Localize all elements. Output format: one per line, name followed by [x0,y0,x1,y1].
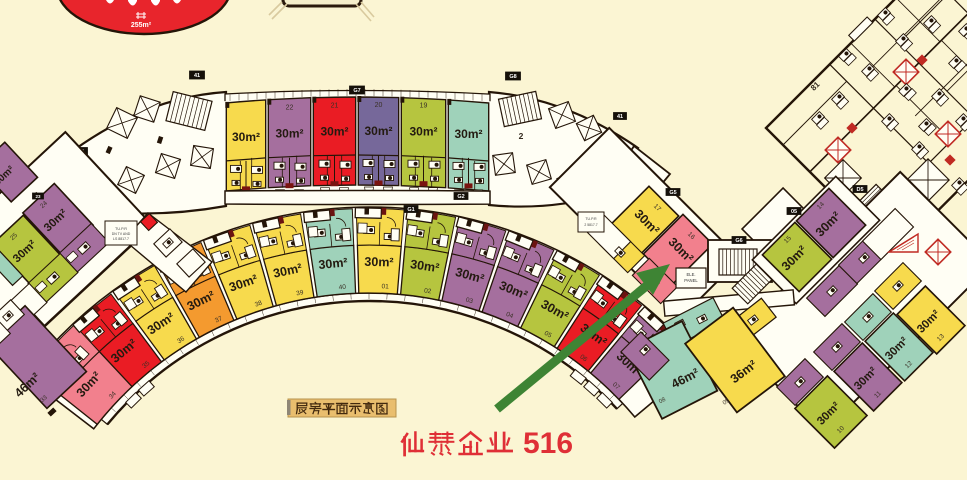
svg-text:TU.P.R: TU.P.R [115,227,127,231]
svg-text:05: 05 [791,209,797,215]
svg-text:LS 8817.7: LS 8817.7 [113,237,129,241]
svg-text:02: 02 [424,287,433,295]
svg-text:30m²: 30m² [454,127,482,141]
svg-text:G6: G6 [735,238,742,244]
svg-text:G5: G5 [669,190,676,196]
svg-text:22: 22 [286,105,294,112]
svg-text:21: 21 [331,103,339,110]
svg-text:ELE.: ELE. [686,272,695,277]
svg-text:01: 01 [381,283,389,290]
svg-text:G1: G1 [407,207,414,213]
svg-text:41: 41 [617,114,623,120]
svg-text:2 5817.7: 2 5817.7 [584,223,597,227]
svg-text:G7: G7 [353,88,360,94]
svg-text:D5: D5 [856,187,863,193]
svg-text:41: 41 [194,73,200,79]
svg-text:G2: G2 [457,194,464,200]
svg-text:TU.P.R: TU.P.R [585,217,597,221]
svg-text:255m²: 255m² [131,22,152,29]
svg-text:40: 40 [338,284,346,292]
svg-text:30m²: 30m² [364,124,392,138]
svg-text:30m²: 30m² [275,127,303,141]
svg-text:19: 19 [420,103,428,110]
svg-text:30m²: 30m² [318,255,348,272]
svg-text:DN TV AND: DN TV AND [112,232,131,236]
svg-text:516: 516 [523,427,573,460]
svg-text:20: 20 [375,102,383,109]
svg-text:PANEL: PANEL [684,278,698,283]
svg-text:30m²: 30m² [409,125,437,139]
svg-text:30m²: 30m² [320,125,348,139]
svg-text:G8: G8 [509,74,516,80]
svg-text:2: 2 [519,131,524,141]
svg-text:23: 23 [35,194,41,199]
svg-text:30m²: 30m² [232,130,260,144]
svg-text:30m²: 30m² [364,255,394,270]
